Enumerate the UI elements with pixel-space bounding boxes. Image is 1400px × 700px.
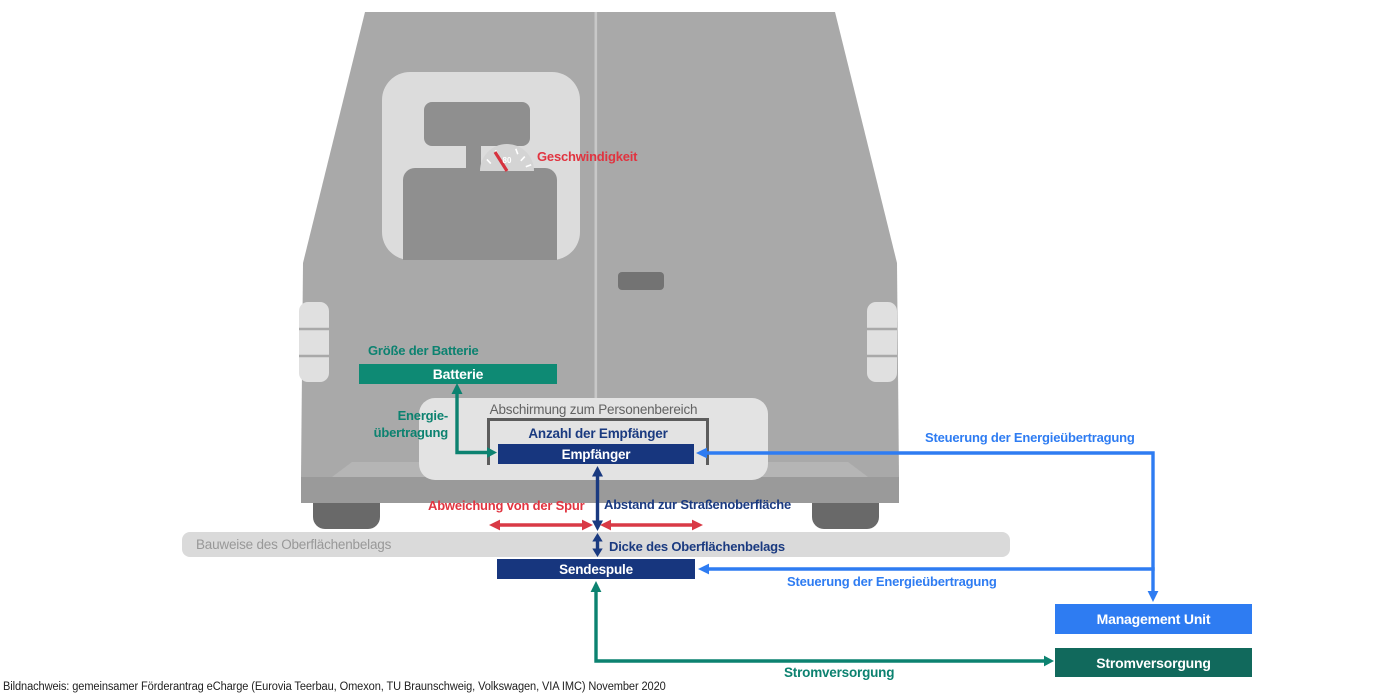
van-rear-illustration: 80 bbox=[0, 0, 1400, 700]
road-surface-label: Bauweise des Oberflächenbelags bbox=[182, 532, 1010, 557]
power-supply-box: Stromversorgung bbox=[1055, 648, 1252, 677]
wheel-right bbox=[812, 486, 879, 529]
speed-label: Geschwindigkeit bbox=[537, 149, 637, 164]
power-supply-line bbox=[591, 581, 1054, 666]
track-deviation-arrow-right bbox=[600, 520, 703, 531]
track-deviation-label: Abweichung von der Spur bbox=[428, 498, 584, 513]
speedometer-value: 80 bbox=[503, 156, 512, 165]
receiver-box: Empfänger bbox=[498, 444, 694, 464]
control-line-lower bbox=[698, 564, 1155, 575]
rear-window bbox=[382, 72, 580, 260]
track-deviation-arrow-left bbox=[489, 520, 593, 531]
speedometer-needle bbox=[495, 152, 507, 171]
seat-back bbox=[403, 168, 557, 260]
taillight-left bbox=[299, 302, 329, 382]
door-handle-icon bbox=[618, 272, 664, 290]
control-label-upper: Steuerung der Energieübertragung bbox=[925, 430, 1135, 445]
connection-arrows bbox=[0, 0, 1400, 700]
battery-size-label: Größe der Batterie bbox=[368, 343, 479, 358]
battery-box: Batterie bbox=[359, 364, 557, 384]
energy-transfer-label: Energie- übertragung bbox=[360, 408, 448, 441]
receiver-count-label: Anzahl der Empfänger bbox=[487, 426, 709, 441]
seat-headrest bbox=[424, 102, 530, 146]
image-credit-caption: Bildnachweis: gemeinsamer Förderantrag e… bbox=[3, 681, 666, 693]
power-supply-line-label: Stromversorgung bbox=[784, 665, 894, 680]
management-unit-box: Management Unit bbox=[1055, 604, 1252, 634]
echarge-diagram: 80 Abschirmung zum Personenbereich Anzah… bbox=[0, 0, 1400, 700]
bumper-band bbox=[301, 477, 899, 503]
taillight-right bbox=[867, 302, 897, 382]
control-label-lower: Steuerung der Energieübertragung bbox=[787, 574, 997, 589]
speedometer-icon: 80 bbox=[480, 144, 534, 171]
wheel-left bbox=[313, 486, 380, 529]
road-distance-label: Abstand zur Straßenoberfläche bbox=[604, 497, 791, 512]
transmitter-coil-box: Sendespule bbox=[497, 559, 695, 579]
road-surface-bar: Bauweise des Oberflächenbelags bbox=[182, 532, 1010, 557]
surface-thickness-label: Dicke des Oberflächenbelags bbox=[609, 539, 785, 554]
seat-post bbox=[466, 140, 481, 174]
shielding-title: Abschirmung zum Personenbereich bbox=[419, 402, 768, 417]
